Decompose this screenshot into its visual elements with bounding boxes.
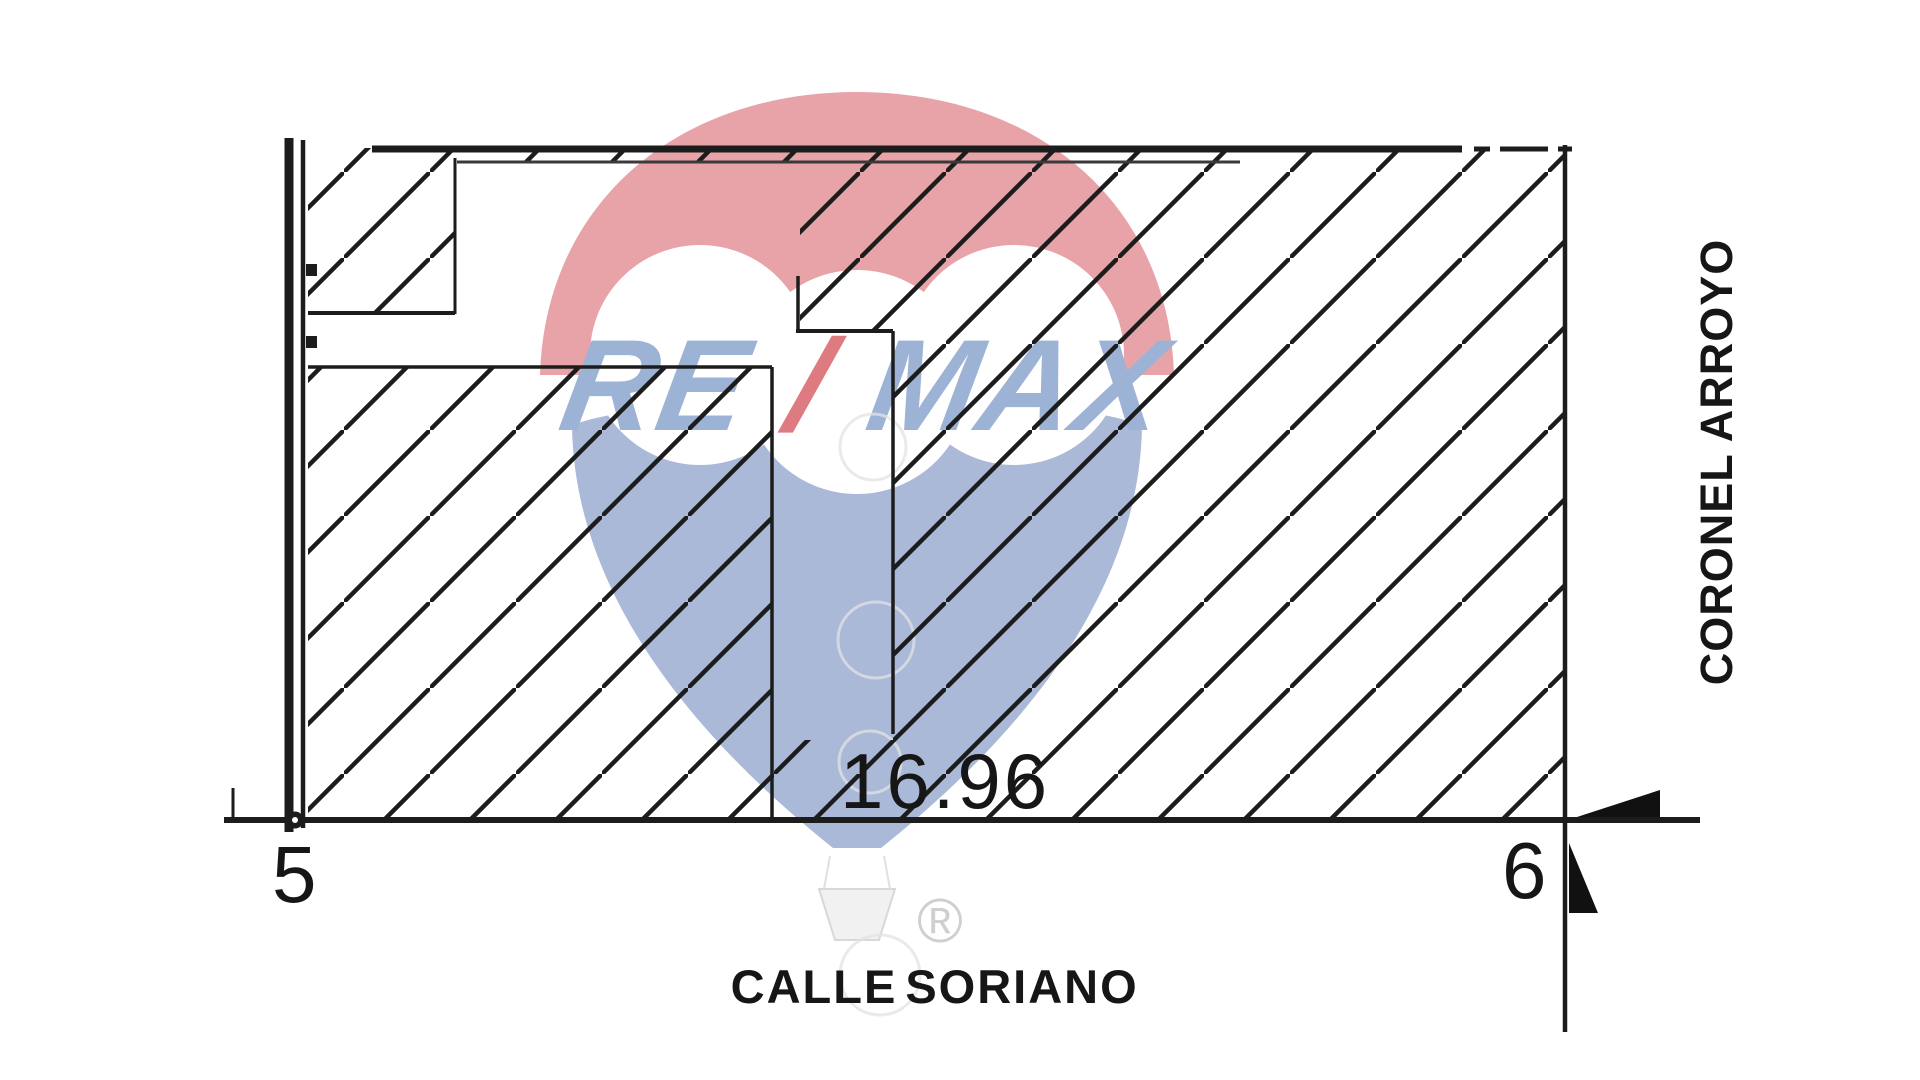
survey-plan-canvas: RE / MAX ®	[0, 0, 1920, 1080]
corner-point-marker-center	[292, 817, 298, 823]
lot-hatch-region	[308, 148, 1565, 820]
basket-rope-left	[824, 856, 830, 889]
basket-rope-right	[884, 856, 890, 889]
street-label-right: CORONEL ARROYO	[1691, 239, 1742, 686]
corner-arrow-upper	[1577, 790, 1660, 817]
registered-mark: ®	[917, 887, 963, 956]
street-label-bottom-calle: CALLE	[731, 960, 898, 1013]
left-boundary-tick	[306, 264, 317, 276]
lot-corner-6-label: 6	[1502, 826, 1547, 915]
corner-arrow-lower	[1569, 843, 1598, 913]
dimension-label: 16.96	[840, 737, 1050, 825]
lot-corner-5-label: 5	[272, 830, 317, 919]
balloon-basket	[819, 889, 895, 940]
left-boundary-tick	[306, 336, 317, 348]
street-label-bottom-soriano: SORIANO	[905, 960, 1138, 1013]
logo-slash: /	[773, 312, 851, 458]
